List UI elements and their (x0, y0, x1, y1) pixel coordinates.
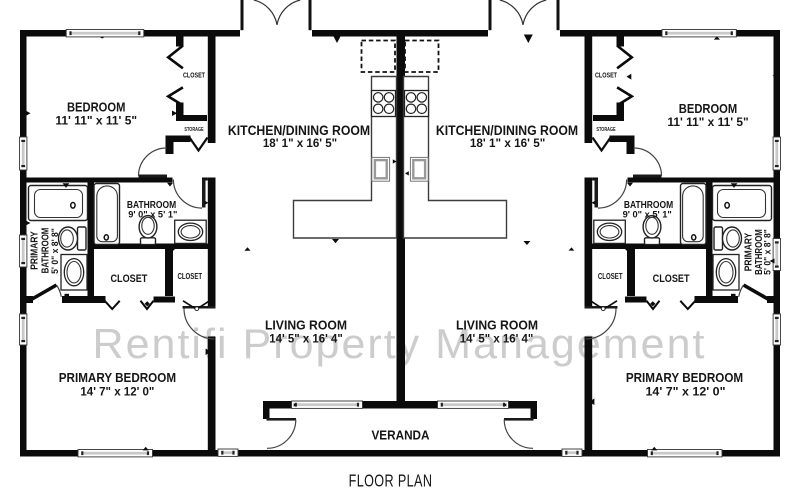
svg-text:9' 0" x 5' 1": 9' 0" x 5' 1" (128, 209, 177, 220)
svg-text:STORAGE: STORAGE (184, 127, 203, 133)
svg-text:BEDROOM: BEDROOM (679, 101, 737, 116)
svg-text:PRIMARY BEDROOM: PRIMARY BEDROOM (626, 370, 743, 385)
svg-text:PRIMARY: PRIMARY (743, 233, 754, 272)
svg-text:FLOOR PLAN: FLOOR PLAN (349, 471, 433, 491)
svg-text:CLOSET: CLOSET (110, 273, 147, 285)
svg-text:LIVING ROOM: LIVING ROOM (265, 318, 347, 333)
svg-text:18' 1" x 16' 5": 18' 1" x 16' 5" (470, 136, 545, 150)
svg-text:14' 7" x 12' 0": 14' 7" x 12' 0" (646, 385, 726, 399)
svg-text:CLOSET: CLOSET (653, 273, 690, 285)
svg-text:BEDROOM: BEDROOM (67, 100, 125, 115)
svg-text:LIVING ROOM: LIVING ROOM (456, 318, 538, 333)
svg-text:CLOSET: CLOSET (183, 71, 205, 80)
svg-text:PRIMARY: PRIMARY (30, 231, 41, 270)
svg-text:CLOSET: CLOSET (595, 71, 617, 80)
svg-text:11' 11" x 11' 5": 11' 11" x 11' 5" (55, 113, 137, 127)
svg-text:CLOSET: CLOSET (598, 271, 623, 281)
svg-text:STORAGE: STORAGE (596, 127, 615, 133)
svg-text:CLOSET: CLOSET (177, 271, 202, 281)
svg-text:9' 0" x 5' 1": 9' 0" x 5' 1" (623, 209, 672, 220)
svg-text:11' 11" x 11' 5": 11' 11" x 11' 5" (667, 115, 748, 129)
svg-text:5' 0" x 8' 8": 5' 0" x 8' 8" (50, 228, 60, 274)
svg-text:14' 7" x 12' 0": 14' 7" x 12' 0" (80, 385, 154, 399)
svg-text:VERANDA: VERANDA (371, 427, 430, 442)
svg-text:PRIMARY BEDROOM: PRIMARY BEDROOM (59, 370, 176, 385)
svg-text:18' 1" x 16' 5": 18' 1" x 16' 5" (263, 136, 337, 150)
svg-text:14' 5" x 16' 4": 14' 5" x 16' 4" (269, 332, 343, 346)
svg-text:14' 5" x 16' 4": 14' 5" x 16' 4" (460, 332, 534, 346)
svg-text:5' 0" x 8' 8": 5' 0" x 8' 8" (763, 229, 773, 275)
